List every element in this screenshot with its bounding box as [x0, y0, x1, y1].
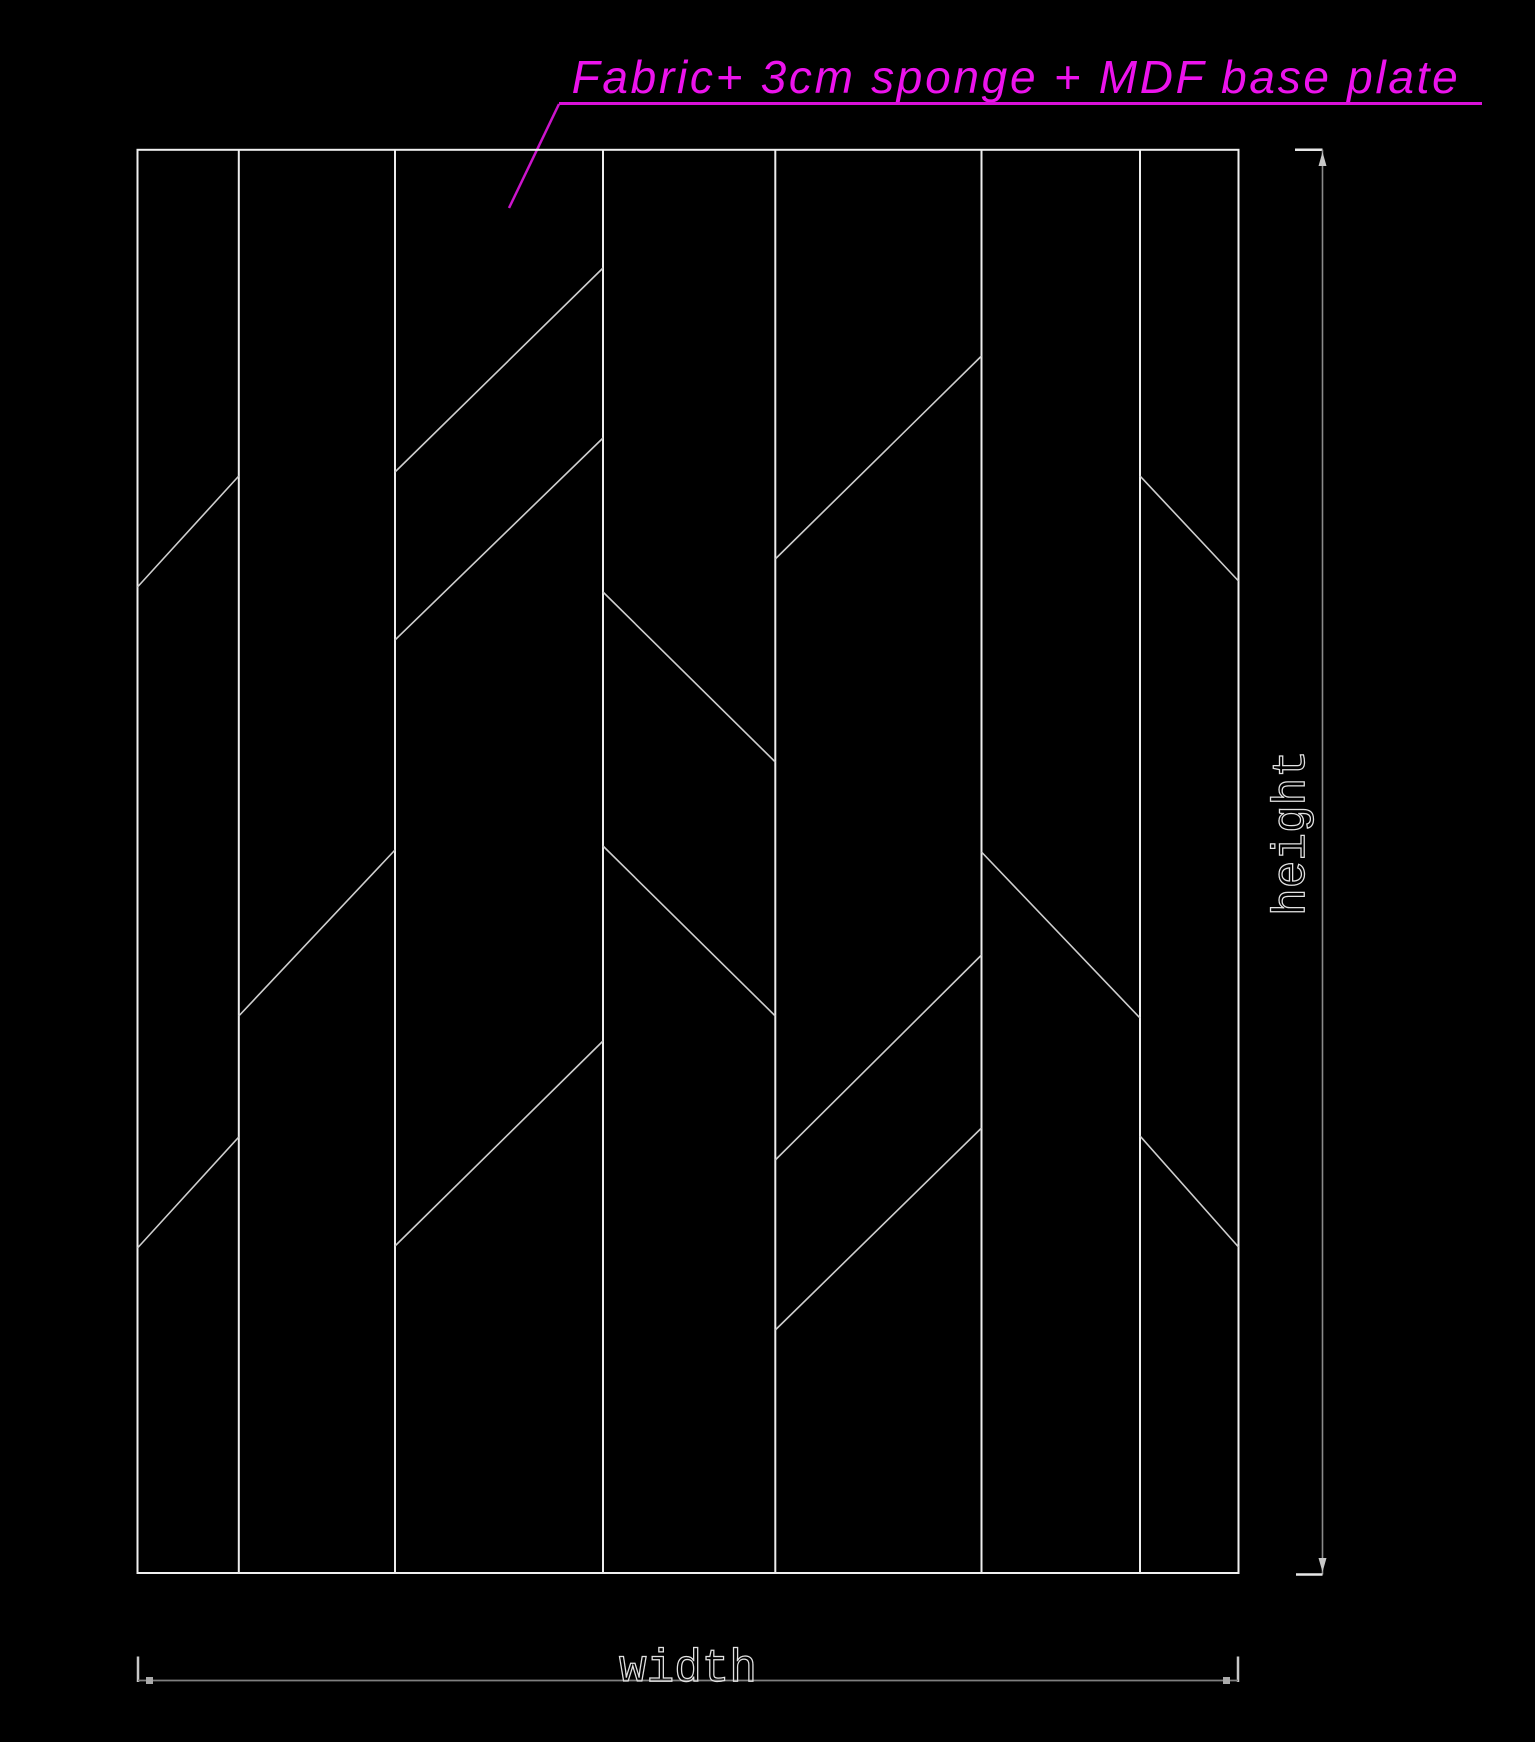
- svg-text:height: height: [1266, 750, 1318, 916]
- svg-text:width: width: [619, 1643, 757, 1695]
- svg-text:Fabric+ 3cm sponge + MDF base: Fabric+ 3cm sponge + MDF base plate: [572, 51, 1461, 103]
